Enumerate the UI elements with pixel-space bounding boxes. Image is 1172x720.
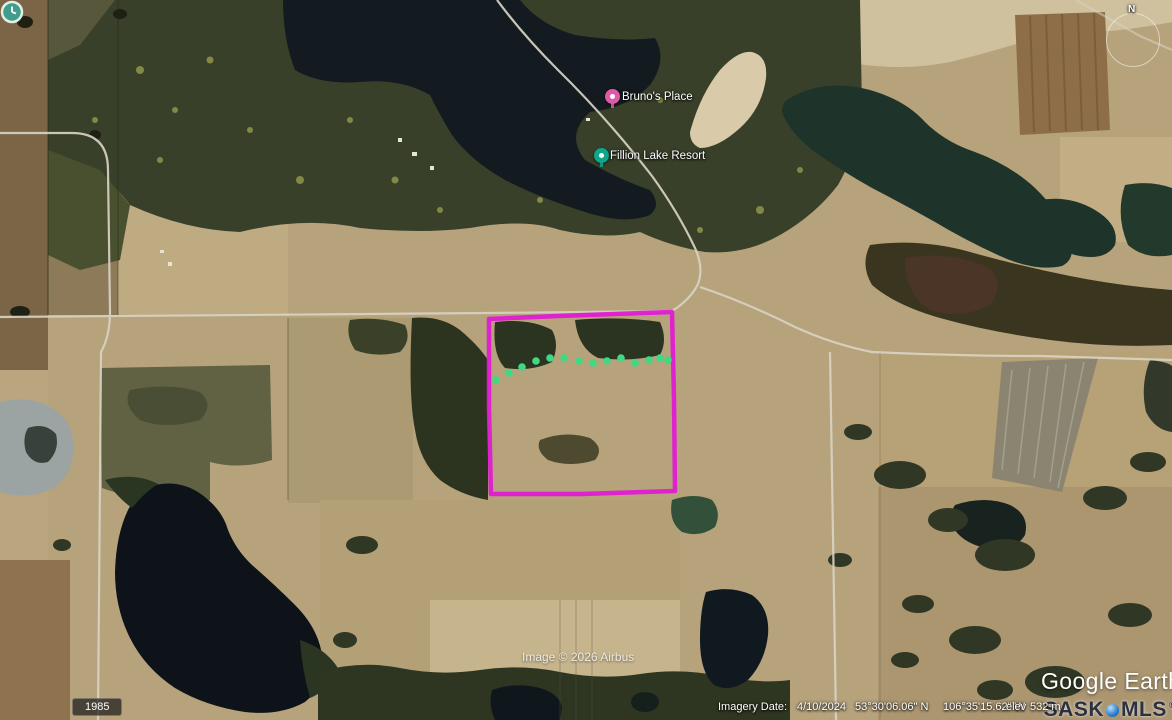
pond-green-small: [671, 496, 718, 534]
place-pin-fillion[interactable]: [594, 148, 609, 163]
elevation-label: elev: [1006, 701, 1026, 713]
map-canvas[interactable]: [0, 0, 1172, 720]
imagery-date-label: Imagery Date:: [718, 701, 787, 713]
sask-mls-watermark: SASK MLS ®: [1044, 698, 1172, 720]
place-pin-brunos[interactable]: [605, 89, 620, 104]
place-label-brunos[interactable]: Bruno's Place: [622, 91, 693, 103]
imagery-date-value: 4/10/2024: [797, 701, 846, 713]
google-earth-map[interactable]: N Bruno's Place Fillion Lake Resort Imag…: [0, 0, 1172, 720]
compass-ring[interactable]: [1106, 13, 1160, 67]
parcel-woods-a: [494, 321, 556, 369]
compass-north-label: N: [1128, 4, 1135, 15]
imagery-credit: Image © 2026 Airbus: [522, 650, 634, 664]
mls-text-right: MLS: [1121, 698, 1167, 720]
elevation-value: 532 m: [1030, 701, 1061, 713]
google-earth-logo: Google Earth: [1041, 668, 1172, 695]
historical-imagery-year-badge[interactable]: 1985: [72, 698, 122, 716]
mls-globe-icon: [1106, 704, 1119, 717]
historical-imagery-clock-icon[interactable]: [0, 0, 24, 24]
place-label-fillion[interactable]: Fillion Lake Resort: [610, 150, 705, 162]
latitude-readout: 53°30'06.06" N: [855, 701, 928, 713]
